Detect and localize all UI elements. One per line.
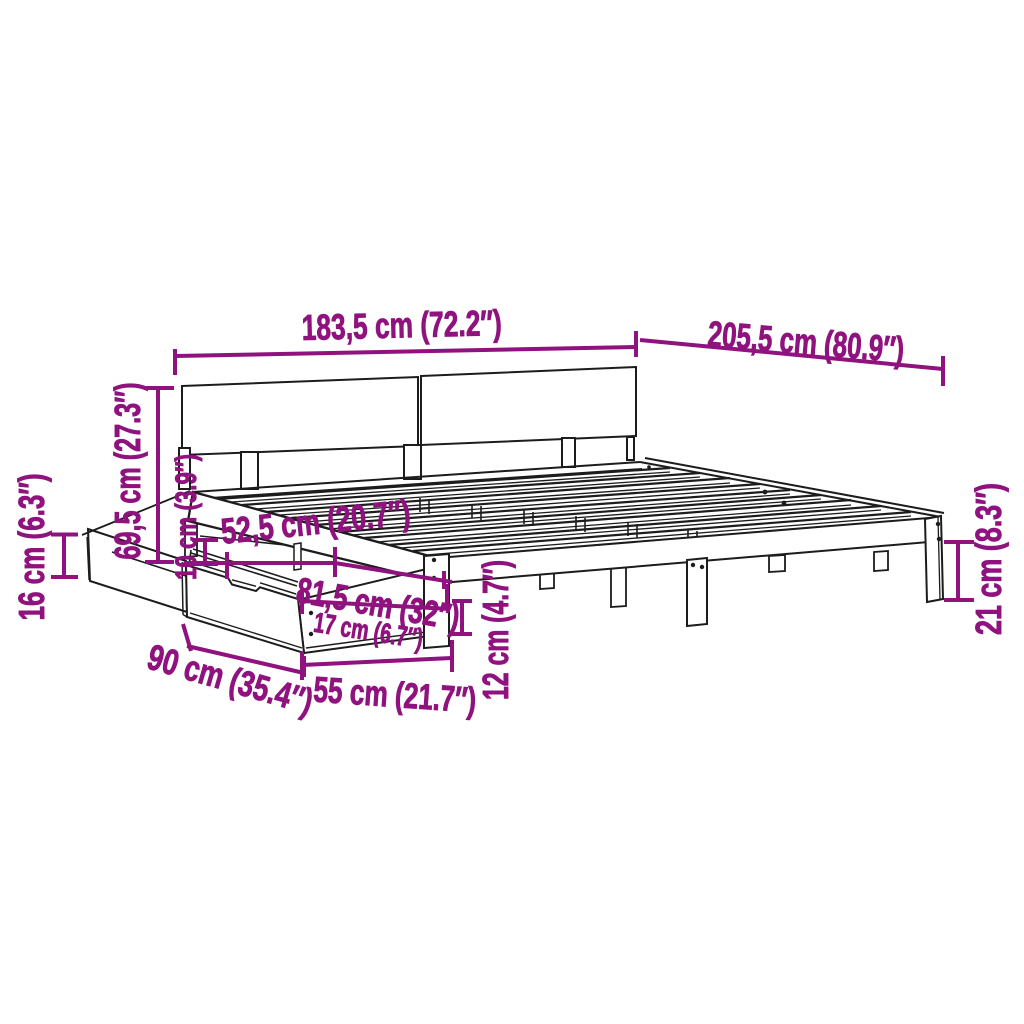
svg-text:16 cm (6.3″): 16 cm (6.3″) xyxy=(11,474,52,621)
svg-text:69,5 cm (27.3″): 69,5 cm (27.3″) xyxy=(107,383,148,560)
svg-text:21 cm (8.3″): 21 cm (8.3″) xyxy=(968,483,1009,635)
svg-text:12 cm (4.7″): 12 cm (4.7″) xyxy=(475,560,516,700)
svg-text:183,5 cm (72.2″): 183,5 cm (72.2″) xyxy=(301,302,502,348)
